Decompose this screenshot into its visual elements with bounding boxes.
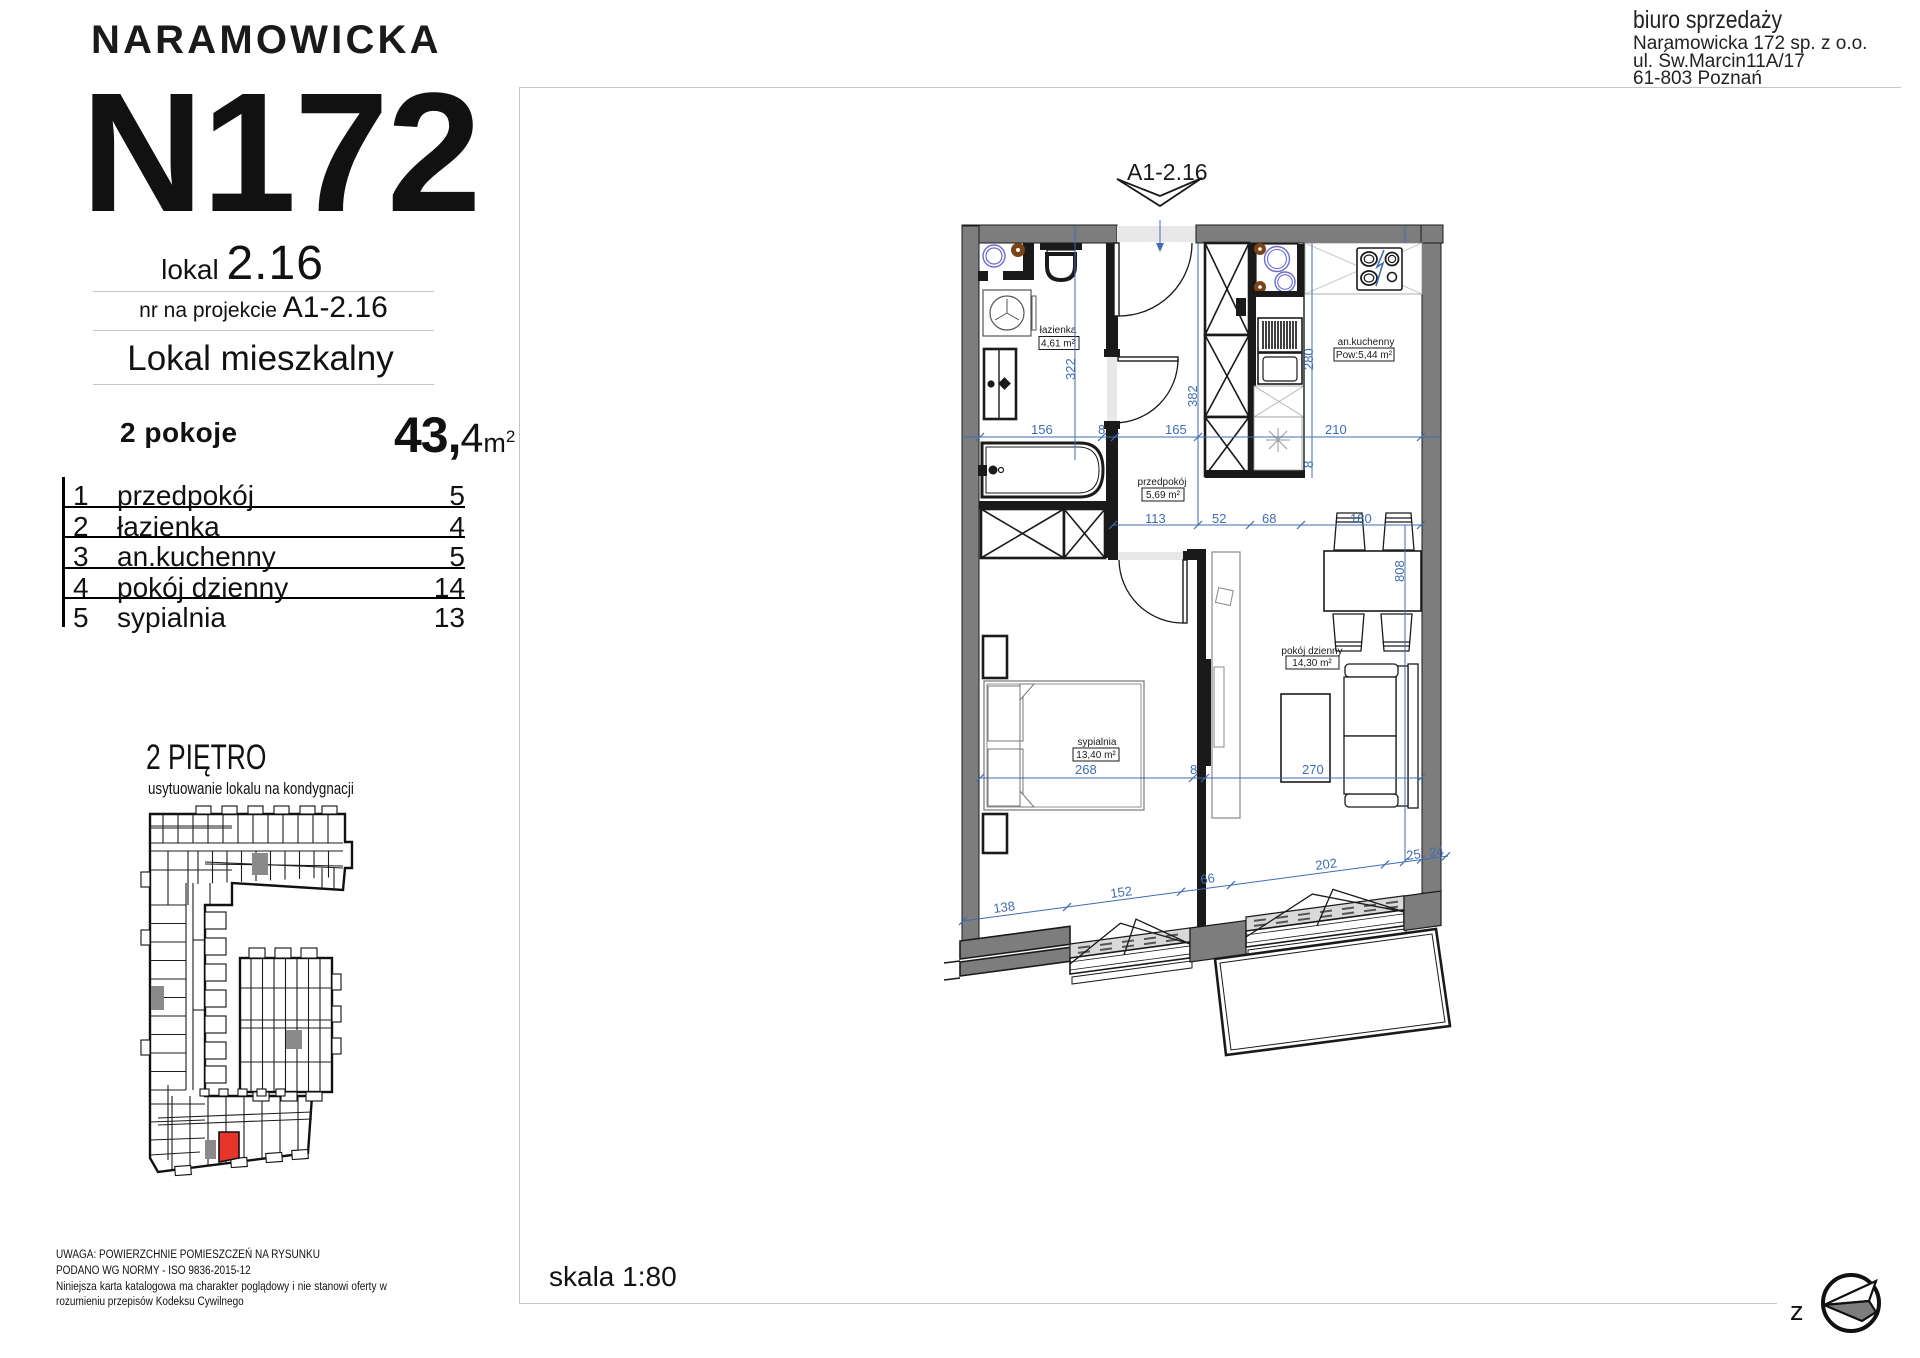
svg-text:8: 8 — [1301, 461, 1316, 468]
svg-text:4,61 m²: 4,61 m² — [1041, 339, 1076, 350]
svg-text:138: 138 — [992, 898, 1015, 916]
svg-text:808: 808 — [1392, 560, 1407, 582]
svg-text:66: 66 — [1199, 870, 1215, 887]
svg-text:8: 8 — [1098, 422, 1105, 437]
svg-text:68: 68 — [1262, 511, 1276, 526]
svg-text:an.kuchenny: an.kuchenny — [1338, 337, 1395, 348]
svg-text:8: 8 — [1190, 762, 1197, 777]
svg-text:14,30 m²: 14,30 m² — [1292, 658, 1332, 669]
svg-text:382: 382 — [1185, 385, 1200, 407]
svg-text:sypialnia: sypialnia — [1078, 737, 1117, 748]
svg-text:25: 25 — [1405, 846, 1421, 863]
svg-text:280: 280 — [1301, 348, 1316, 370]
svg-text:13,40 m²: 13,40 m² — [1076, 750, 1116, 761]
svg-text:270: 270 — [1302, 762, 1324, 777]
svg-text:24: 24 — [1428, 843, 1444, 860]
svg-text:165: 165 — [1165, 422, 1187, 437]
svg-text:pokój dzienny: pokój dzienny — [1281, 646, 1342, 657]
svg-text:210: 210 — [1325, 422, 1347, 437]
svg-text:322: 322 — [1063, 358, 1078, 380]
svg-text:156: 156 — [1031, 422, 1053, 437]
svg-text:152: 152 — [1109, 883, 1132, 901]
svg-text:przedpokój: przedpokój — [1138, 477, 1187, 488]
svg-text:5,69 m²: 5,69 m² — [1146, 490, 1181, 501]
svg-text:268: 268 — [1075, 762, 1097, 777]
svg-text:113: 113 — [1145, 511, 1166, 526]
svg-text:Pow:5,44 m²: Pow:5,44 m² — [1336, 350, 1393, 361]
svg-text:łazienka: łazienka — [1040, 325, 1077, 336]
svg-text:z: z — [1790, 1296, 1804, 1326]
svg-text:180: 180 — [1350, 511, 1372, 526]
svg-text:52: 52 — [1212, 511, 1226, 526]
svg-text:202: 202 — [1314, 855, 1337, 873]
